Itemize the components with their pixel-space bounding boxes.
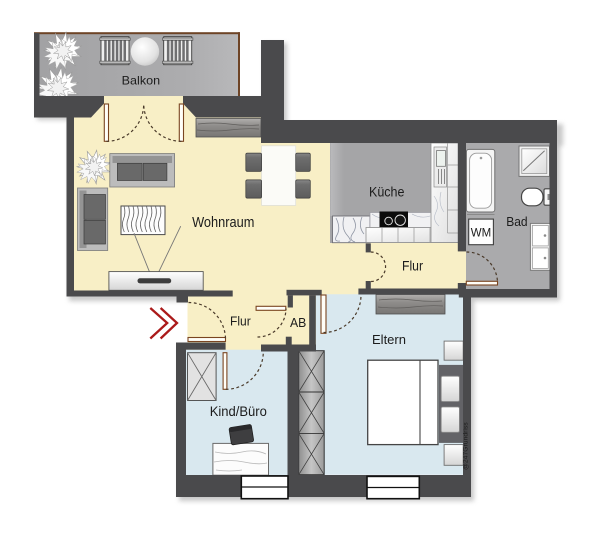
svg-text:@247Grundriss: @247Grundriss <box>463 422 470 470</box>
svg-text:Wohnraum: Wohnraum <box>192 215 254 231</box>
svg-text:Kind/Büro: Kind/Büro <box>210 404 267 419</box>
svg-text:Flur: Flur <box>230 314 251 329</box>
svg-text:Bad: Bad <box>506 215 527 229</box>
svg-text:Küche: Küche <box>369 184 405 200</box>
svg-text:WM: WM <box>471 228 491 240</box>
svg-text:AB: AB <box>290 315 306 330</box>
svg-text:Balkon: Balkon <box>122 73 160 87</box>
svg-text:Eltern: Eltern <box>372 332 406 347</box>
svg-text:Flur: Flur <box>402 259 423 274</box>
